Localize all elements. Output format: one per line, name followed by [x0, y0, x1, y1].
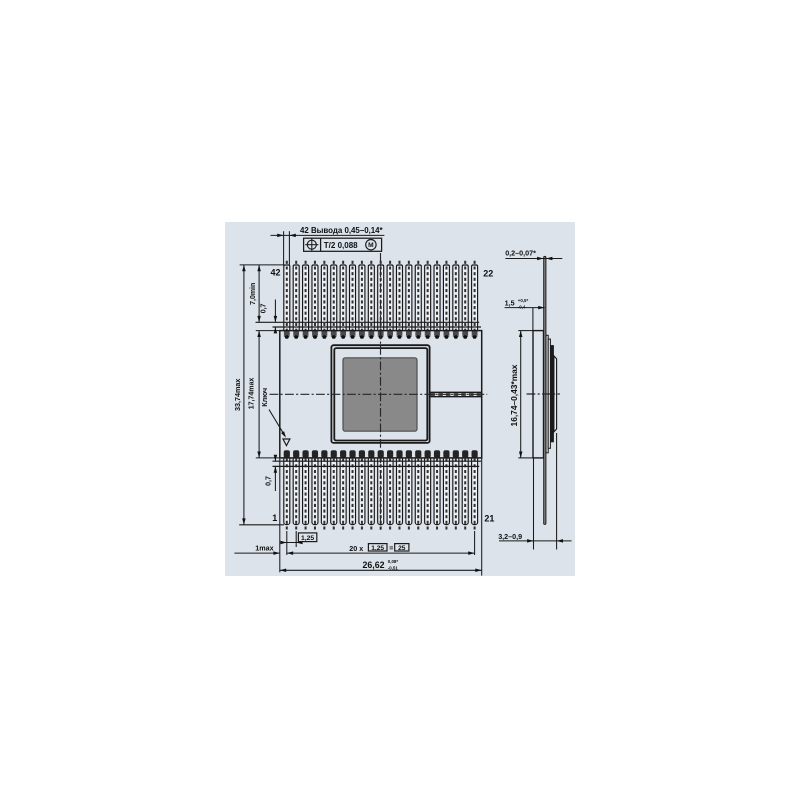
svg-text:М: М — [368, 242, 374, 249]
svg-text:1,25: 1,25 — [371, 545, 384, 552]
svg-text:16,74–0,43*max: 16,74–0,43*max — [509, 364, 519, 426]
svg-text:1,25: 1,25 — [301, 535, 314, 542]
svg-text:Ключ: Ключ — [260, 388, 269, 407]
svg-text:0,7: 0,7 — [261, 303, 268, 313]
svg-text:3,2–0,9: 3,2–0,9 — [498, 532, 522, 541]
svg-text:-0,51: -0,51 — [388, 566, 399, 571]
svg-text:20 х: 20 х — [349, 544, 363, 553]
svg-text:0,7: 0,7 — [265, 476, 272, 486]
svg-text:1: 1 — [272, 513, 277, 523]
svg-text:0,2–0,07*: 0,2–0,07* — [505, 249, 536, 258]
svg-text:1,5: 1,5 — [505, 298, 515, 307]
svg-text:22: 22 — [483, 268, 493, 278]
svg-text:42: 42 — [270, 267, 280, 277]
svg-text:7,0min: 7,0min — [250, 283, 257, 305]
svg-text:Т/2 0,088: Т/2 0,088 — [324, 241, 358, 250]
svg-text:0,08*: 0,08* — [388, 559, 399, 564]
svg-text:26,62: 26,62 — [363, 560, 385, 570]
svg-text:-0,4: -0,4 — [518, 304, 526, 309]
svg-text:+0,5*: +0,5* — [518, 298, 529, 303]
svg-text:=: = — [389, 545, 393, 552]
svg-text:42 Вывода 0,45–0,14*: 42 Вывода 0,45–0,14* — [300, 226, 384, 235]
svg-text:17,74max: 17,74max — [248, 378, 255, 410]
svg-text:21: 21 — [484, 514, 494, 524]
svg-text:33,74max: 33,74max — [233, 379, 242, 411]
svg-text:1max: 1max — [255, 543, 273, 552]
svg-text:25: 25 — [398, 545, 406, 552]
